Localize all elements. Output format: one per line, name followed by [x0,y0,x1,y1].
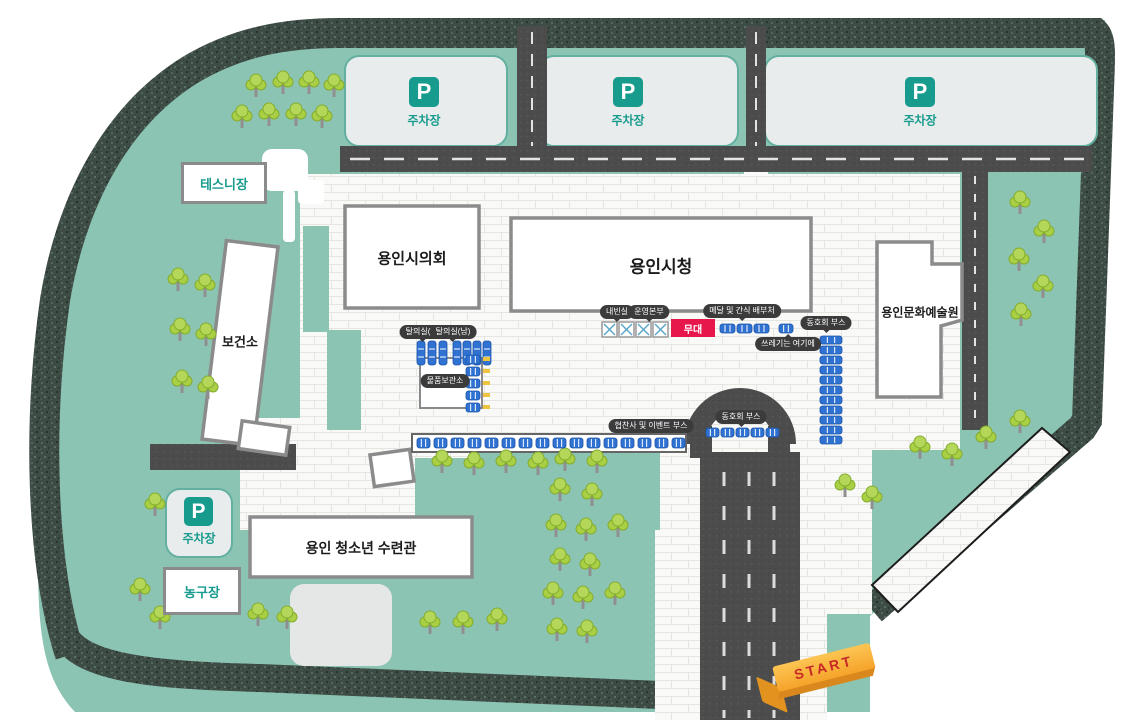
parking-icon: P [905,77,935,107]
basketball-court-label: 농구장 [163,567,241,615]
culture-arts-label: 용인문화예술원 [881,304,958,321]
club-booth-pill: 동호회 부스 [800,316,851,330]
small-structure [238,421,289,455]
medal-snack-pill: 메달 및 간식 배부처 [703,304,781,318]
parking-label: 주차장 [903,112,936,129]
storage-pill: 물품보관소 [421,374,470,388]
tennis-court-label: 테스니장 [181,162,267,204]
parking-icon: P [613,77,643,107]
parking-label: 주차장 [182,530,215,547]
venue-map: P 주차장 P 주차장 P 주차장 P 주차장 테스니장 농구장 보건소 용인시… [0,0,1144,720]
youth-center-label: 용인 청소년 수련관 [306,538,417,558]
parking-label: 주차장 [611,112,644,129]
operation-hq-pill: 운영본부 [628,305,669,319]
changing-room-m-pill: 탈의실(남) [430,325,477,339]
health-center-label: 보건소 [222,332,258,351]
trash-here-pill: 쓰레기는 여기에 [755,337,821,351]
stage-label: 무대 [671,319,715,337]
club-booth-pill: 동호회 부스 [715,410,766,424]
parking-icon: P [184,497,213,526]
city-hall-label: 용인시청 [630,253,693,278]
sponsor-booth-pill: 협찬사 및 이벤트 부스 [609,419,694,433]
parking-icon: P [409,77,439,107]
small-structure [370,449,414,486]
city-council-label: 용인시의회 [377,248,446,269]
parking-label: 주차장 [407,112,440,129]
